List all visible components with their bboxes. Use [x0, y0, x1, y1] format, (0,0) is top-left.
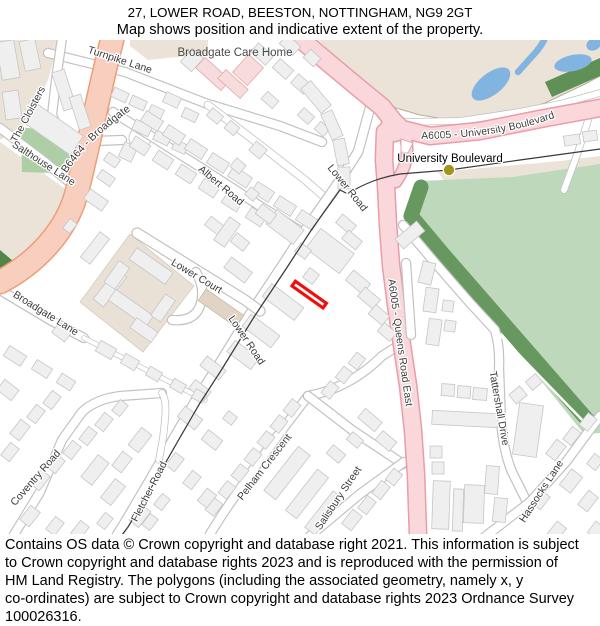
- svg-text:Broadgate Care Home: Broadgate Care Home: [177, 47, 292, 59]
- svg-text:University Boulevard: University Boulevard: [397, 153, 502, 165]
